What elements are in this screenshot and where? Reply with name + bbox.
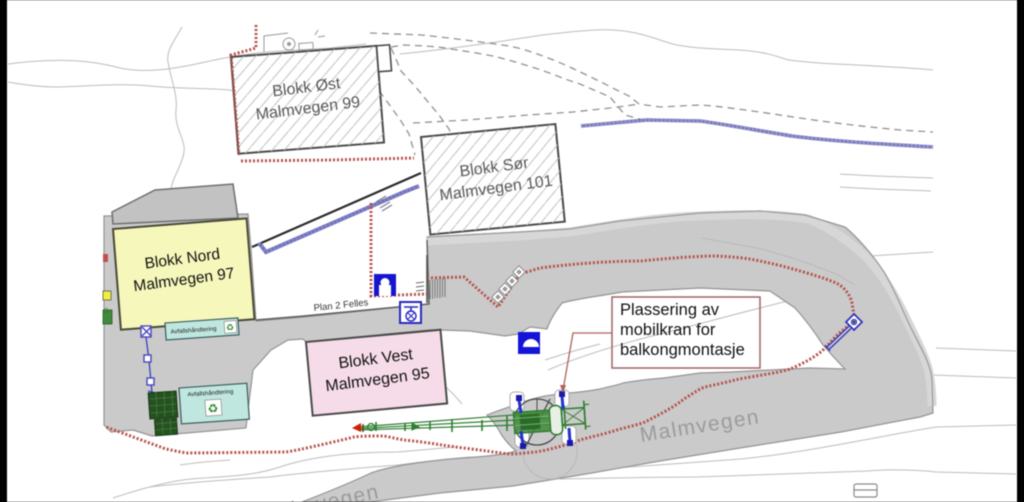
svg-text:balkongmontasje: balkongmontasje xyxy=(620,341,745,359)
svg-text:mobilkran for: mobilkran for xyxy=(620,321,716,339)
svg-text:S: S xyxy=(104,308,109,315)
svg-text:♻: ♻ xyxy=(226,322,235,333)
svg-text:Plassering av: Plassering av xyxy=(620,301,720,319)
svg-text:♻: ♻ xyxy=(207,401,219,416)
